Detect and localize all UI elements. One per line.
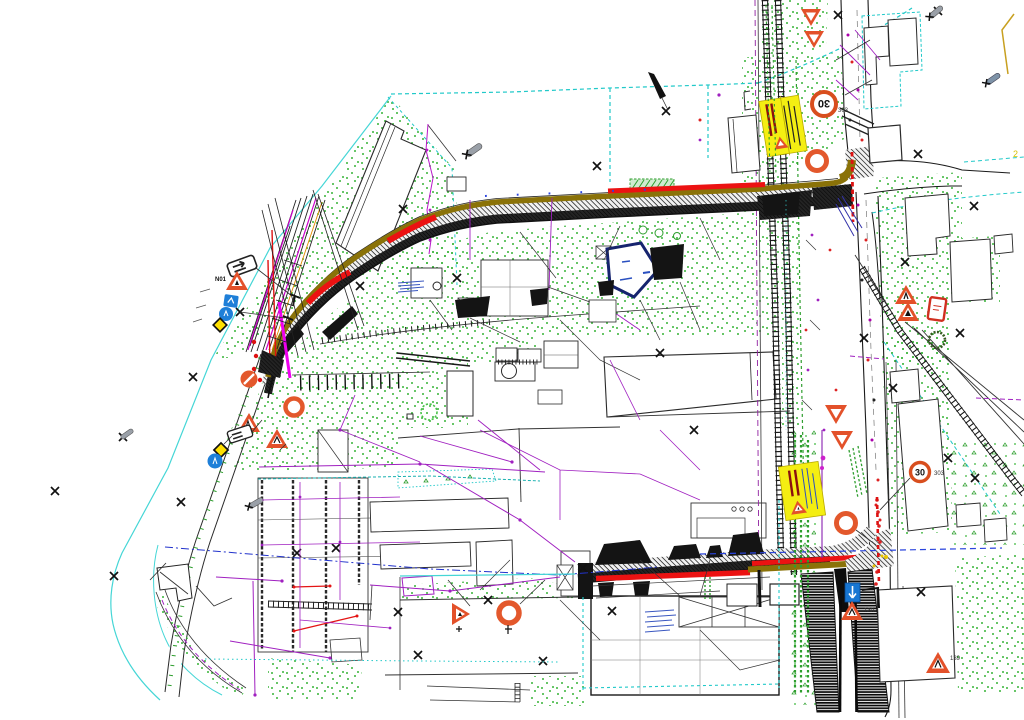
svg-text:139: 139 — [950, 656, 961, 662]
svg-text:303: 303 — [934, 471, 945, 477]
svg-text:N01: N01 — [215, 277, 227, 283]
svg-text:2: 2 — [1013, 149, 1018, 159]
svg-text:363: 363 — [838, 108, 849, 114]
svg-text:30: 30 — [818, 97, 830, 109]
svg-text:30: 30 — [915, 468, 925, 478]
svg-text:130: 130 — [864, 608, 875, 614]
